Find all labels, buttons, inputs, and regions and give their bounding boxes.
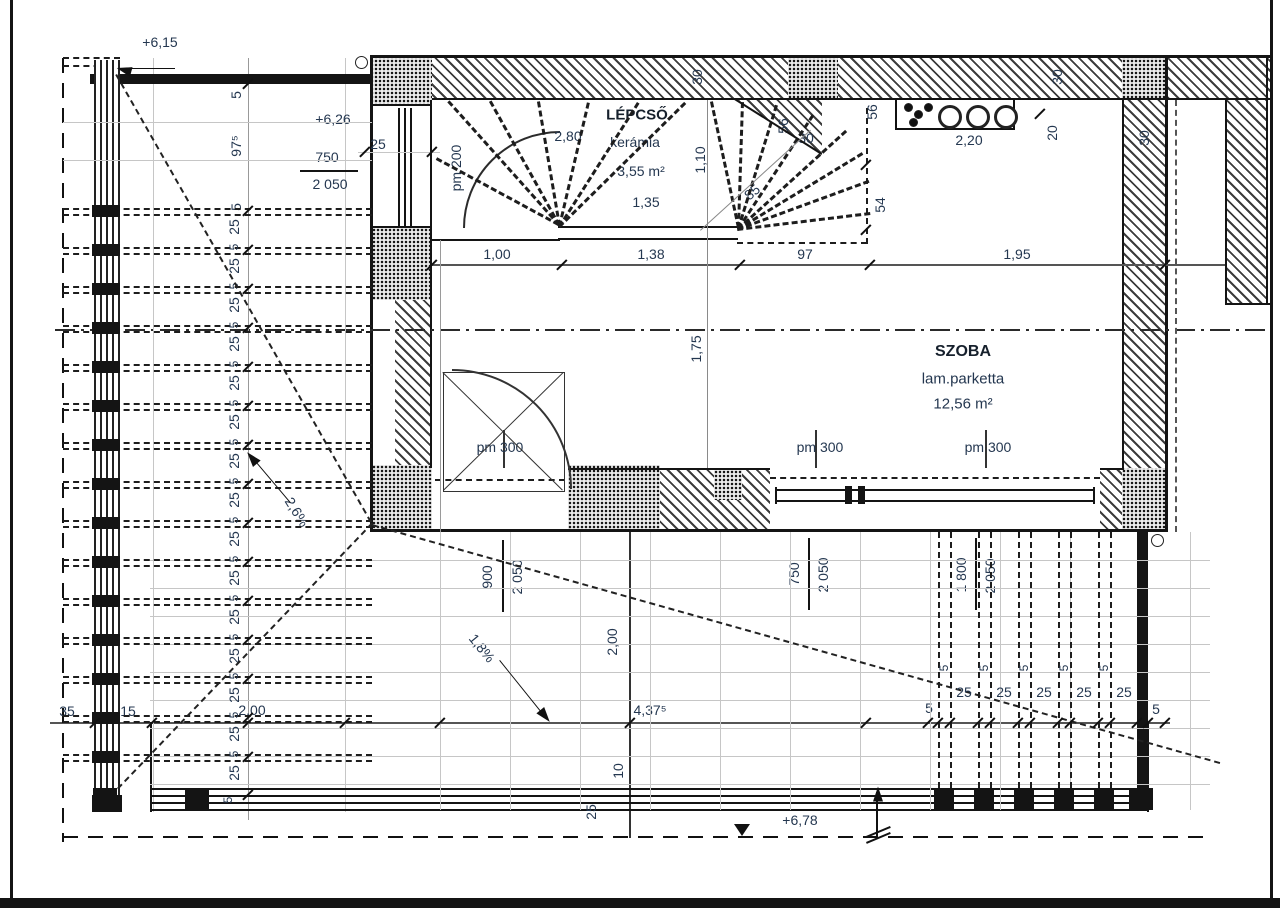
batten-block	[92, 595, 120, 607]
chain-gap-label: 25	[227, 297, 241, 313]
rafter-line	[1110, 532, 1112, 788]
chain-batten-label: 5	[228, 556, 240, 563]
eave-band	[150, 802, 1148, 804]
rafter-block	[974, 788, 994, 810]
grid-line	[650, 532, 651, 810]
batten-block	[92, 673, 120, 685]
grid-line	[63, 122, 372, 123]
door-w: 900	[480, 565, 494, 588]
chain-batten-label: 5	[228, 712, 240, 719]
room-window-mullion	[845, 486, 852, 504]
level-stair-door: +6,26	[315, 112, 350, 126]
fraction-bar	[975, 538, 977, 610]
eave-band	[150, 788, 1148, 790]
stair-window-h: 2 050	[312, 177, 347, 191]
marker-circle	[1151, 534, 1164, 547]
radiator-knob	[966, 105, 990, 129]
stair-width: 1,10	[693, 146, 707, 173]
grid-line	[1000, 532, 1001, 810]
rafter-line	[1070, 532, 1072, 788]
frame-right	[1270, 0, 1273, 908]
wall30-right: 30	[1137, 130, 1151, 146]
dim-offset10: 10	[611, 763, 625, 779]
eave-edge	[150, 722, 152, 812]
rafter-batten-label: 5	[938, 665, 950, 672]
stair-tread	[558, 102, 590, 227]
outline	[1225, 100, 1227, 305]
room-name: SZOBA	[935, 344, 991, 360]
chain-gap-label: 25	[227, 375, 241, 391]
stair-hall-edge	[432, 239, 560, 241]
sill-hall: pm 300	[477, 440, 524, 454]
frame-bottom	[0, 898, 1280, 908]
room-area-stair: 3,55 m²	[617, 164, 664, 178]
gutter-band	[1137, 532, 1148, 790]
room-finish: lam.parketta	[922, 372, 1005, 387]
dim-edge25: 25	[584, 804, 598, 820]
fraction-bar	[808, 538, 810, 610]
rafter-line	[978, 532, 980, 788]
stair-window-jamb: 25	[370, 137, 386, 151]
chain-batten-label: 5	[228, 361, 240, 368]
level-marker-triangle	[734, 824, 750, 836]
stair-d56-right: 56	[865, 104, 879, 120]
chain-batten-label: 5	[228, 751, 240, 758]
stair-window-w: 750	[315, 150, 338, 164]
chain-batten-label: 5	[228, 244, 240, 251]
corner-bottom-right	[1122, 465, 1168, 532]
batten-block	[92, 634, 120, 646]
outline	[370, 55, 1270, 58]
chain-batten-label: 5	[228, 439, 240, 446]
chain-gap-label: 25	[227, 609, 241, 625]
wall30-top-right: 30	[1050, 69, 1064, 85]
stair-d54: 54	[873, 197, 887, 213]
chain-batten-label: 5	[228, 400, 240, 407]
chain-batten-label: 5	[228, 595, 240, 602]
left-post	[94, 60, 120, 812]
chain-tail-label: 5	[222, 797, 234, 804]
stair-window-frame	[398, 108, 400, 226]
rafter-gap-label: 25	[996, 685, 1012, 699]
grid-line	[510, 532, 511, 810]
sill-room2: pm 300	[965, 440, 1012, 454]
batten-block	[92, 244, 120, 256]
stair-opening-dashed	[737, 242, 867, 244]
ridge-beam	[90, 74, 372, 84]
radiator-dot	[904, 103, 913, 112]
rafter-gap-label: 25	[1036, 685, 1052, 699]
frame-left	[10, 0, 13, 908]
rafter-block	[1014, 788, 1034, 810]
level-terrace: +6,78	[782, 813, 817, 827]
rafter-line	[1058, 532, 1060, 788]
dim-post5: 5	[1152, 702, 1160, 716]
stair-window-head	[372, 104, 432, 106]
corner-bottom-left	[372, 465, 432, 532]
eave-block	[93, 788, 117, 810]
room-window-jamb	[1093, 487, 1095, 504]
eave-block	[185, 788, 209, 810]
stair-tread-width: 1,35	[632, 195, 659, 209]
grid-line	[150, 700, 1210, 701]
rafter-block	[1054, 788, 1074, 810]
rafter-batten-label: 5	[1098, 665, 1110, 672]
grid-line	[63, 160, 372, 161]
level-arrow-line	[125, 68, 175, 69]
gable-dashed	[1175, 100, 1177, 532]
room-window-opening	[770, 477, 1100, 479]
chain-gap-label: 25	[227, 726, 241, 742]
radiator-dot	[924, 103, 933, 112]
eave-band	[150, 809, 1148, 811]
rafter-block	[1094, 788, 1114, 810]
grid-line	[150, 616, 1210, 617]
chain-gap-label: 25	[227, 453, 241, 469]
stair-window-sill	[372, 226, 432, 228]
slope-arrow-line	[499, 660, 545, 717]
room-window-frame	[775, 500, 1095, 502]
batten-block	[92, 478, 120, 490]
rafter-batten-label: 5	[1058, 665, 1070, 672]
chain-batten-label: 5	[228, 634, 240, 641]
chain-gap-label: 25	[227, 219, 241, 235]
rafter-block	[934, 788, 954, 810]
column-top-mid	[788, 55, 838, 100]
batten-block	[92, 283, 120, 295]
dim-top-2: 97	[797, 247, 813, 261]
batten-block	[92, 751, 120, 763]
rafter-line	[938, 532, 940, 788]
radiator-dot	[909, 118, 918, 127]
ref-line	[629, 532, 631, 838]
rafter-line	[1030, 532, 1032, 788]
stair-landing-edge	[558, 238, 738, 240]
wall-far-right	[1225, 100, 1268, 305]
column-top-left	[370, 55, 432, 105]
dim-line-top	[432, 264, 1225, 266]
floor-plan: +6,15 +6,26 750 2 050 25 pm 200 LÉPCSŐ k…	[0, 0, 1280, 908]
grid-line	[1190, 532, 1191, 810]
stair-landing-edge	[558, 226, 738, 228]
batten-block	[92, 361, 120, 373]
level-upper-left: +6,15	[142, 35, 177, 49]
outline	[1225, 303, 1270, 305]
wall-left	[395, 300, 432, 468]
eave-band	[150, 795, 1148, 797]
block-door-right	[568, 465, 660, 532]
rafter-line	[950, 532, 952, 788]
chain-gap-label: 25	[227, 531, 241, 547]
chain-batten-label: 5	[228, 322, 240, 329]
rafter-batten-label: 5	[978, 665, 990, 672]
chain-batten-label: 5	[228, 673, 240, 680]
outline	[568, 468, 770, 470]
arrowhead	[873, 787, 883, 802]
boundary-dashed-bottom	[63, 836, 1210, 838]
wall-left-block	[372, 228, 432, 300]
grid-line	[720, 532, 721, 810]
room-depth: 1,75	[689, 335, 703, 362]
chain-head-0: 5	[229, 91, 243, 99]
terrace-depth: 2,00	[605, 628, 619, 655]
batten-block	[92, 400, 120, 412]
batten-block	[92, 322, 120, 334]
grid-line	[440, 532, 441, 810]
fraction-bar	[502, 540, 504, 612]
outline	[372, 529, 1168, 532]
radiator-length: 2,20	[955, 133, 982, 147]
stair-window-frame	[410, 108, 412, 226]
dim-top-1: 1,38	[637, 247, 664, 261]
rafter-gap-label: 25	[956, 685, 972, 699]
grid-line	[150, 756, 1210, 757]
room-window-jamb	[775, 487, 777, 504]
grid-line	[150, 784, 1210, 785]
dim-top-3: 1,95	[1003, 247, 1030, 261]
room-name-stair: LÉPCSŐ	[606, 108, 668, 123]
dim-tick	[1034, 108, 1046, 120]
batten-block	[92, 556, 120, 568]
outline	[1122, 100, 1124, 468]
eave-block	[1129, 788, 1153, 810]
chain-gap-label: 25	[227, 414, 241, 430]
chain-batten-label: 5	[228, 478, 240, 485]
batten-block	[92, 517, 120, 529]
block-bottom-small	[714, 470, 742, 500]
grid-line	[790, 532, 791, 810]
outline	[432, 98, 1270, 100]
radiator-knob	[938, 105, 962, 129]
slope-lower: 1,8%	[467, 631, 498, 665]
room-window-mullion	[858, 486, 865, 504]
radiator-gap: 20	[1045, 125, 1059, 141]
rafter-gap-label: 25	[1076, 685, 1092, 699]
wall-right	[1122, 100, 1168, 468]
grid-line	[150, 672, 1210, 673]
rafter-line	[1018, 532, 1020, 788]
chain-gap-label: 25	[227, 765, 241, 781]
wall-bottom-b	[1100, 468, 1122, 530]
chain-gap-label: 25	[227, 570, 241, 586]
chain-gap-label: 25	[227, 687, 241, 703]
outline	[1165, 55, 1168, 532]
chain-gap-label: 25	[227, 492, 241, 508]
rafter-line	[1098, 532, 1100, 788]
batten-block	[92, 205, 120, 217]
stair-opening-dashed	[866, 108, 868, 244]
boundary-dashed-left	[62, 58, 64, 842]
grid-line	[930, 532, 931, 810]
wall30-top-left: 30	[690, 69, 704, 85]
fraction-bar	[300, 170, 358, 172]
grid-line	[580, 532, 581, 810]
rafter-batten-label: 5	[1018, 665, 1030, 672]
batten-block	[92, 439, 120, 451]
grid-line	[860, 532, 861, 810]
room-area: 12,56 m²	[933, 397, 992, 412]
ref-line	[153, 58, 154, 812]
radiator-knob	[994, 105, 1018, 129]
eave-dashed	[63, 57, 120, 59]
dim-top-0: 1,00	[483, 247, 510, 261]
grid-line	[150, 728, 1210, 729]
column-top-right	[1122, 55, 1168, 100]
sill-room1: pm 300	[797, 440, 844, 454]
chain-batten-label: 5	[228, 517, 240, 524]
dim-pre5: 5	[925, 701, 933, 715]
marker-circle	[355, 56, 368, 69]
chain-head-1: 97⁵	[229, 135, 243, 156]
room-window-frame	[775, 489, 1095, 491]
rafter-line	[990, 532, 992, 788]
rafter-gap-label: 25	[1116, 685, 1132, 699]
chain-gap-label: 25	[227, 336, 241, 352]
outline	[1100, 468, 1124, 470]
stair-window-frame	[404, 108, 406, 226]
outline	[1266, 55, 1268, 305]
stair-tread	[710, 101, 740, 228]
